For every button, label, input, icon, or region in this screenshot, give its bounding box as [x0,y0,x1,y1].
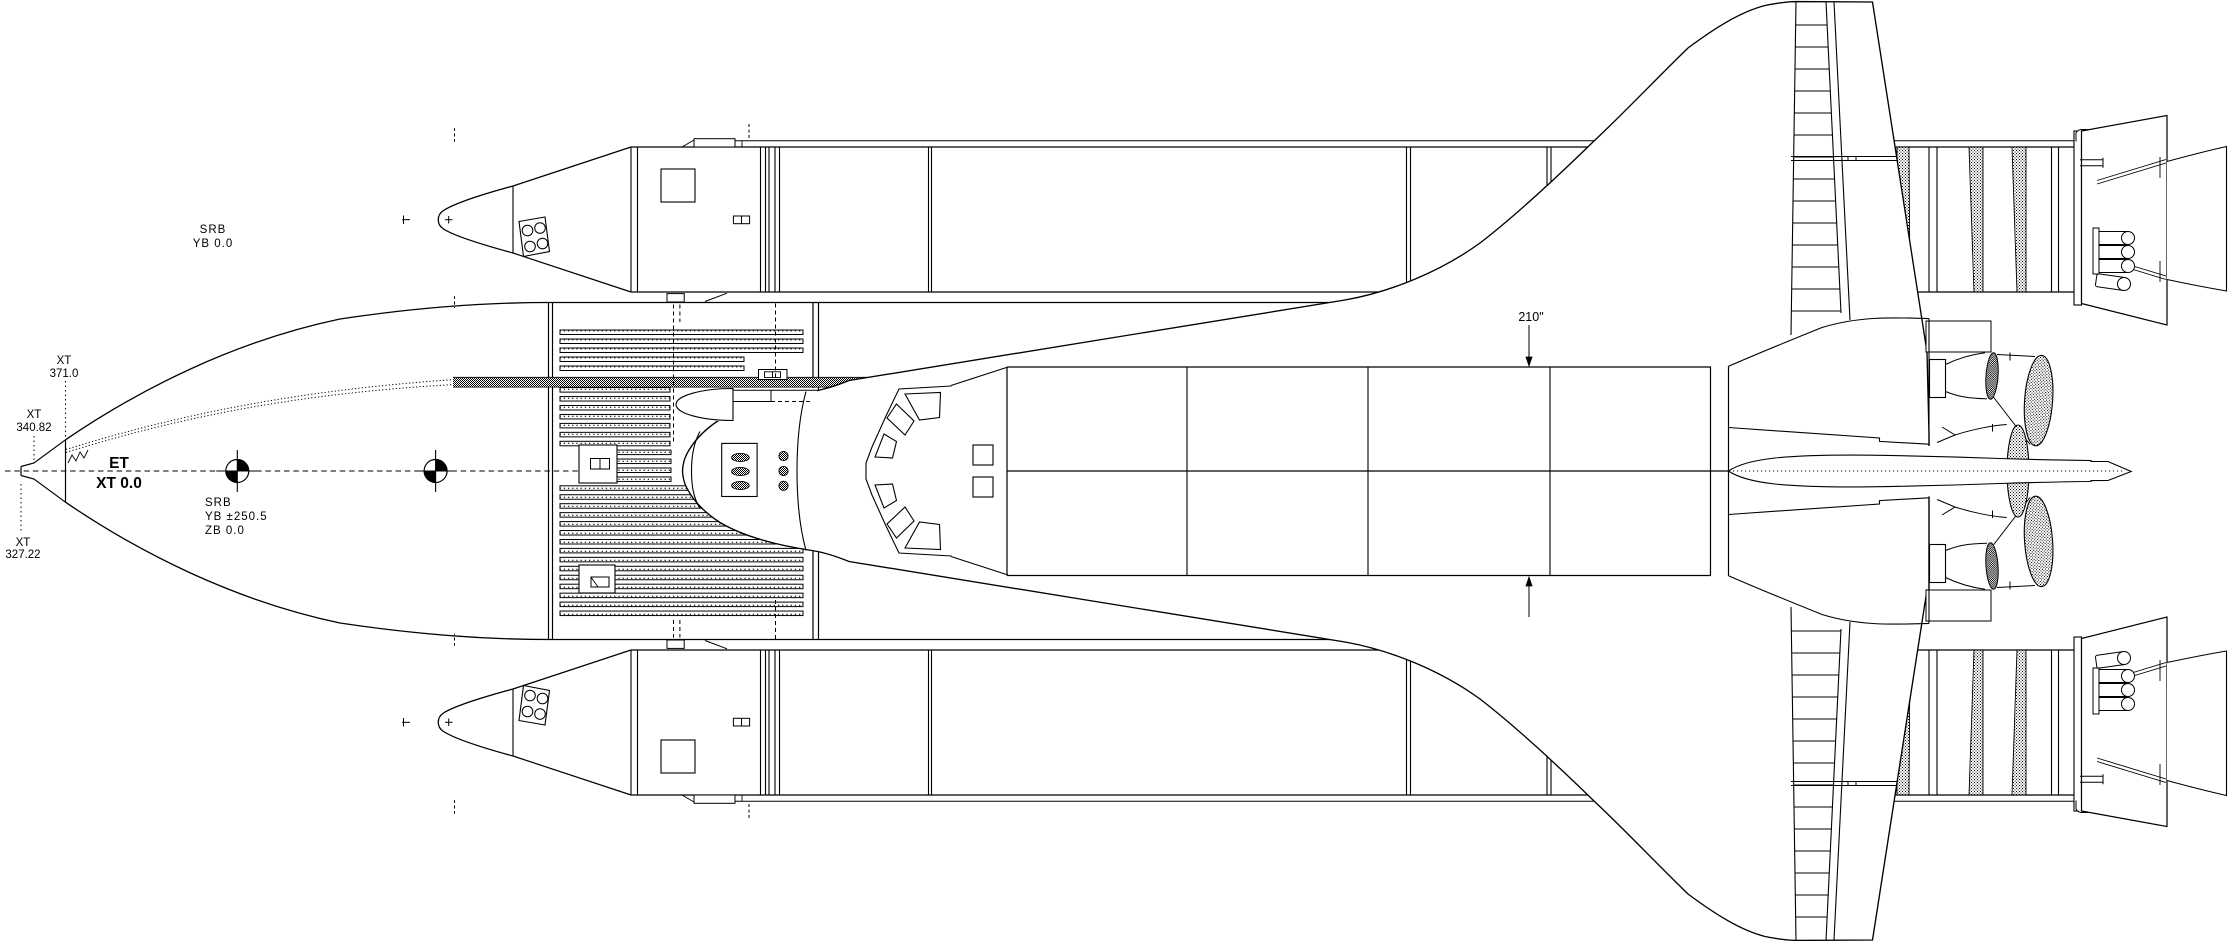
svg-text:XT: XT [16,537,31,549]
svg-text:YB ±250.5: YB ±250.5 [205,511,268,523]
svg-text:YB 0.0: YB 0.0 [193,238,234,250]
svg-text:210": 210" [1518,310,1543,324]
svg-text:XT: XT [27,409,42,421]
svg-text:SRB: SRB [205,497,232,509]
svg-text:XT 0.0: XT 0.0 [96,475,142,492]
svg-text:ET: ET [109,455,129,472]
svg-text:340.82: 340.82 [16,422,51,434]
svg-text:SRB: SRB [200,224,227,236]
svg-text:ZB 0.0: ZB 0.0 [205,525,245,537]
svg-text:XT: XT [57,355,72,367]
svg-text:327.22: 327.22 [5,549,40,561]
svg-text:371.0: 371.0 [50,368,79,380]
